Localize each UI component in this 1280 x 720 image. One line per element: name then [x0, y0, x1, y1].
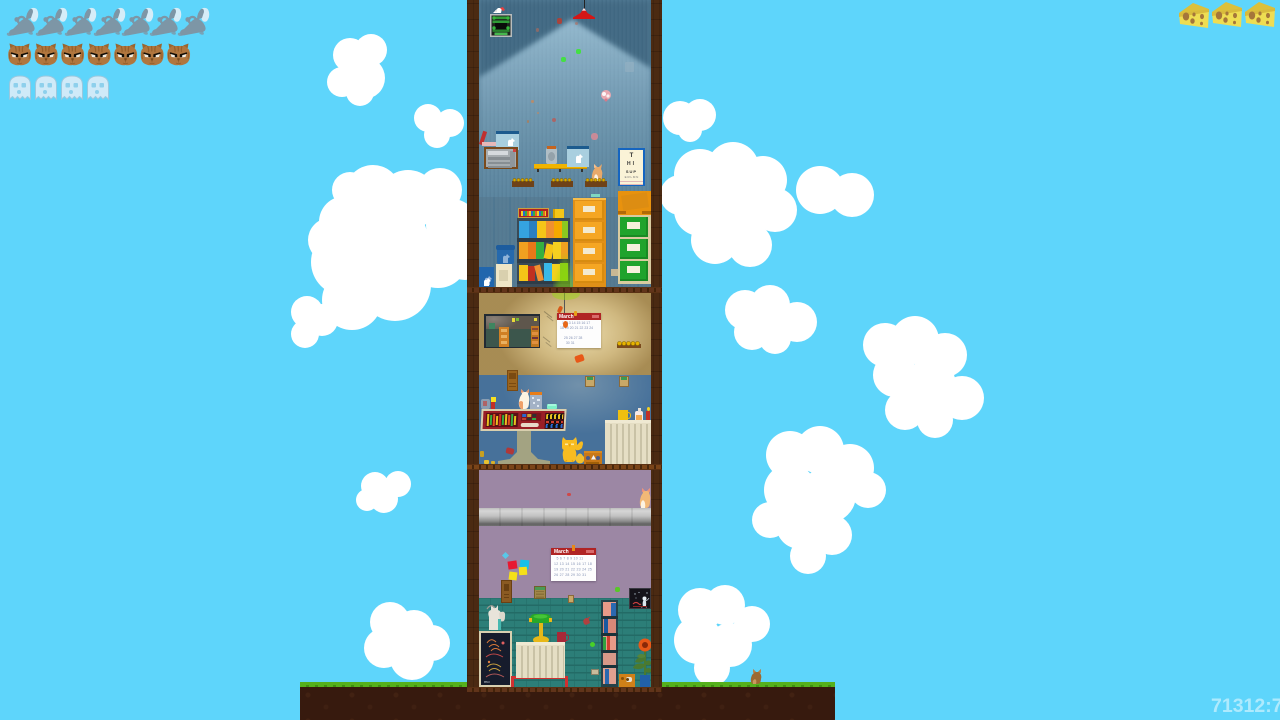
svg-text:mo: mo: [484, 679, 490, 684]
